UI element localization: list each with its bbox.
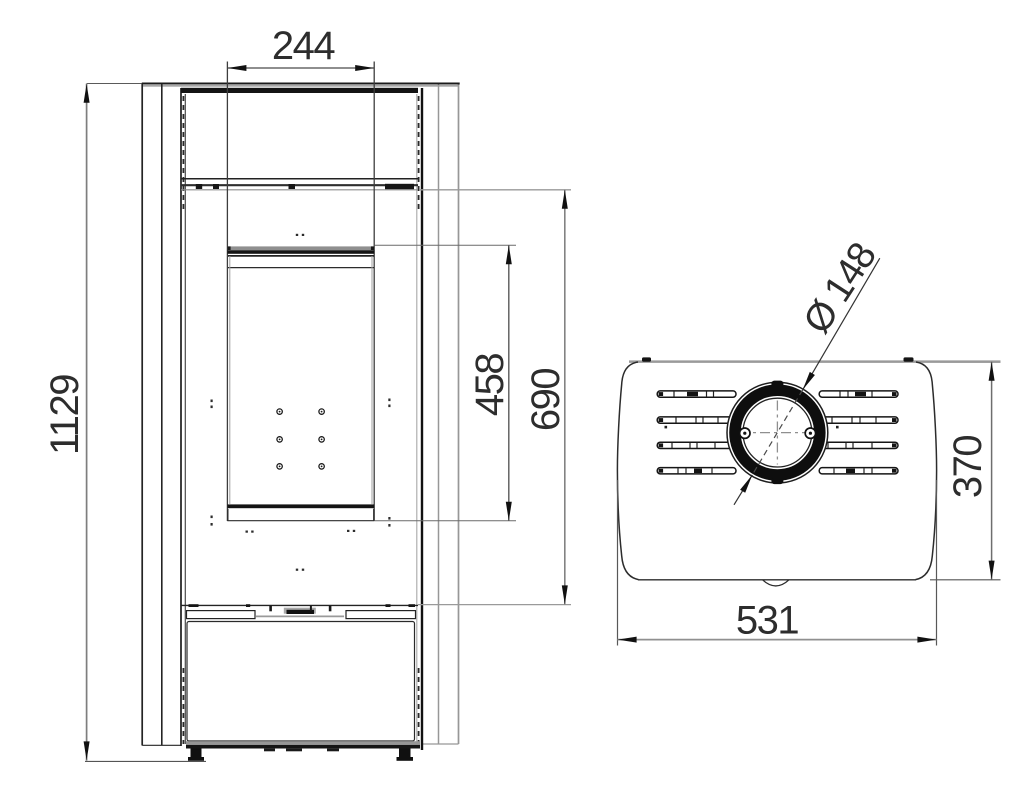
svg-text:1129: 1129 — [43, 375, 87, 455]
svg-text:244: 244 — [272, 24, 335, 68]
svg-text:458: 458 — [468, 354, 512, 416]
svg-text:370: 370 — [946, 436, 990, 498]
svg-text:531: 531 — [736, 599, 798, 643]
svg-text:690: 690 — [524, 369, 568, 431]
